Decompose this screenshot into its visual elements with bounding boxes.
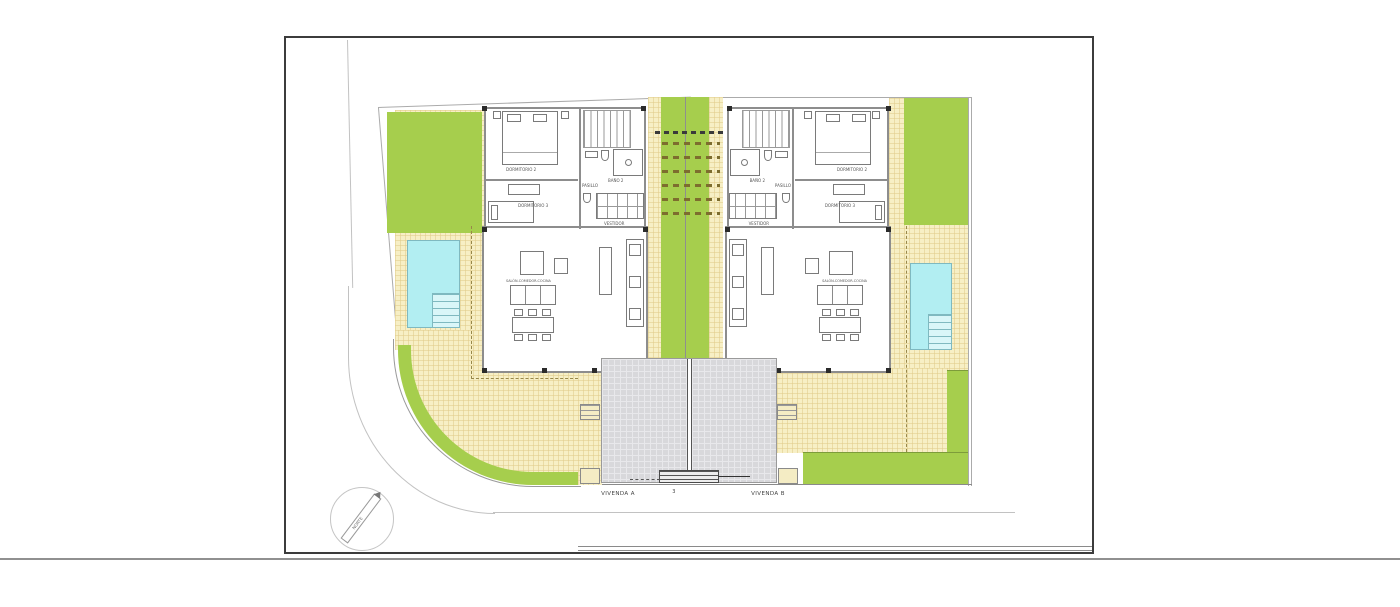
house-a: DORMITORIO 2 DORMITORIO 3 BAÑO 2 PASILLO… xyxy=(482,105,648,373)
room-label-pasillo: PASILLO xyxy=(582,183,598,188)
gate-pier xyxy=(580,468,600,484)
armchair xyxy=(554,258,568,274)
driveway-divider xyxy=(687,359,692,473)
north-compass: NORTE xyxy=(330,487,394,551)
toilet xyxy=(601,150,609,161)
pool-a-steps xyxy=(432,293,460,328)
toilet xyxy=(583,193,591,203)
dining-chair xyxy=(514,309,523,316)
dining-chair xyxy=(836,309,845,316)
dining-chair xyxy=(528,309,537,316)
house-b: DORMITORIO 2 DORMITORIO 3 BAÑO 2 PASILLO… xyxy=(725,105,891,373)
armchair xyxy=(829,251,853,275)
armchair xyxy=(805,258,819,274)
terrace-center-left xyxy=(648,97,661,359)
pergola-beam-6 xyxy=(662,212,720,215)
house-lower-block xyxy=(725,226,891,373)
desk xyxy=(508,184,540,195)
nightstand xyxy=(872,111,880,119)
staircase xyxy=(742,110,790,148)
pergola-beam-5 xyxy=(662,198,720,201)
kitchen-island xyxy=(599,247,612,295)
floor-plan-page: DORMITORIO 2 DORMITORIO 3 BAÑO 2 PASILLO… xyxy=(0,0,1400,607)
room-label-vestidor: VESTIDOR xyxy=(604,221,624,226)
double-bed xyxy=(815,111,871,165)
wardrobe xyxy=(596,193,644,219)
gate-swing-line xyxy=(718,476,750,477)
dwelling-b-label: VIVENDA B xyxy=(746,491,790,497)
entrance-gate xyxy=(659,470,719,483)
dining-chair xyxy=(822,334,831,341)
sofa xyxy=(817,285,863,305)
street-edge-double-1 xyxy=(578,546,1092,547)
lawn-top-right xyxy=(904,98,968,225)
pergola-beam-3 xyxy=(662,170,720,173)
terrace-center-right xyxy=(709,97,723,359)
page-divider-line xyxy=(0,558,1400,560)
gate-pier xyxy=(778,468,798,484)
room-label-dormitorio2: DORMITORIO 2 xyxy=(506,167,536,172)
lawn-center-strip xyxy=(661,97,709,359)
room-label-dormitorio3: DORMITORIO 3 xyxy=(825,203,855,208)
dining-table xyxy=(819,317,861,333)
room-label-dormitorio2: DORMITORIO 2 xyxy=(837,167,867,172)
bathroom-sink xyxy=(775,151,788,158)
toilet xyxy=(782,193,790,203)
plot-boundary-right-outer xyxy=(971,97,972,486)
pergola-beam-2 xyxy=(662,156,720,159)
north-needle: NORTE xyxy=(341,493,382,543)
gate-dashed-line xyxy=(630,479,660,480)
dining-chair xyxy=(822,309,831,316)
pool-a xyxy=(407,240,460,328)
terrace-dashed-bottom xyxy=(471,378,578,379)
lawn-bottom-band xyxy=(803,452,968,484)
nightstand xyxy=(493,111,501,119)
terrace-dashed-right xyxy=(906,226,907,452)
kitchen-counter xyxy=(626,239,644,327)
terrace-front-right xyxy=(777,368,949,453)
room-label-dormitorio3: DORMITORIO 3 xyxy=(518,203,548,208)
pool-b xyxy=(910,263,952,350)
kitchen-counter xyxy=(729,239,747,327)
bathroom-sink xyxy=(585,151,598,158)
dining-chair xyxy=(542,334,551,341)
nightstand xyxy=(804,111,812,119)
street-edge-double-2 xyxy=(578,550,1092,551)
dining-chair xyxy=(542,309,551,316)
pergola-beam-4 xyxy=(662,184,720,187)
center-strip-line xyxy=(685,97,686,359)
room-label-salon: SALÓN-COMEDOR-COCINA xyxy=(506,279,551,284)
plot-boundary-bottom xyxy=(560,484,972,485)
dining-chair xyxy=(850,334,859,341)
room-label-vestidor: VESTIDOR xyxy=(749,221,769,226)
room-label-bano2: BAÑO 2 xyxy=(750,178,765,183)
sofa xyxy=(510,285,556,305)
dwelling-a-label: VIVENDA A xyxy=(596,491,640,497)
dining-table xyxy=(512,317,554,333)
house-lower-block xyxy=(482,226,648,373)
wardrobe xyxy=(729,193,777,219)
terrace-dashed-left xyxy=(471,226,472,379)
kitchen-island xyxy=(761,247,774,295)
room-label-bano2: BAÑO 2 xyxy=(608,178,623,183)
armchair xyxy=(520,251,544,275)
plot-number: 3 xyxy=(670,489,678,495)
driveway xyxy=(601,358,777,483)
lawn-top-left xyxy=(387,112,482,233)
shower xyxy=(730,149,760,176)
pergola-beam-top xyxy=(655,131,725,134)
room-label-salon: SALÓN-COMEDOR-COCINA xyxy=(822,279,867,284)
entry-steps xyxy=(580,404,600,420)
entry-steps xyxy=(777,404,797,420)
street-curb-bottom xyxy=(493,512,1015,513)
dining-chair xyxy=(850,309,859,316)
room-label-pasillo: PASILLO xyxy=(775,183,791,188)
staircase xyxy=(583,110,631,148)
pergola-beam-1 xyxy=(662,142,720,145)
dining-chair xyxy=(528,334,537,341)
nightstand xyxy=(561,111,569,119)
desk xyxy=(833,184,865,195)
north-label: NORTE xyxy=(351,516,364,530)
pool-b-steps xyxy=(928,314,952,350)
toilet xyxy=(764,150,772,161)
double-bed xyxy=(502,111,558,165)
dining-chair xyxy=(836,334,845,341)
shower xyxy=(613,149,643,176)
dining-chair xyxy=(514,334,523,341)
